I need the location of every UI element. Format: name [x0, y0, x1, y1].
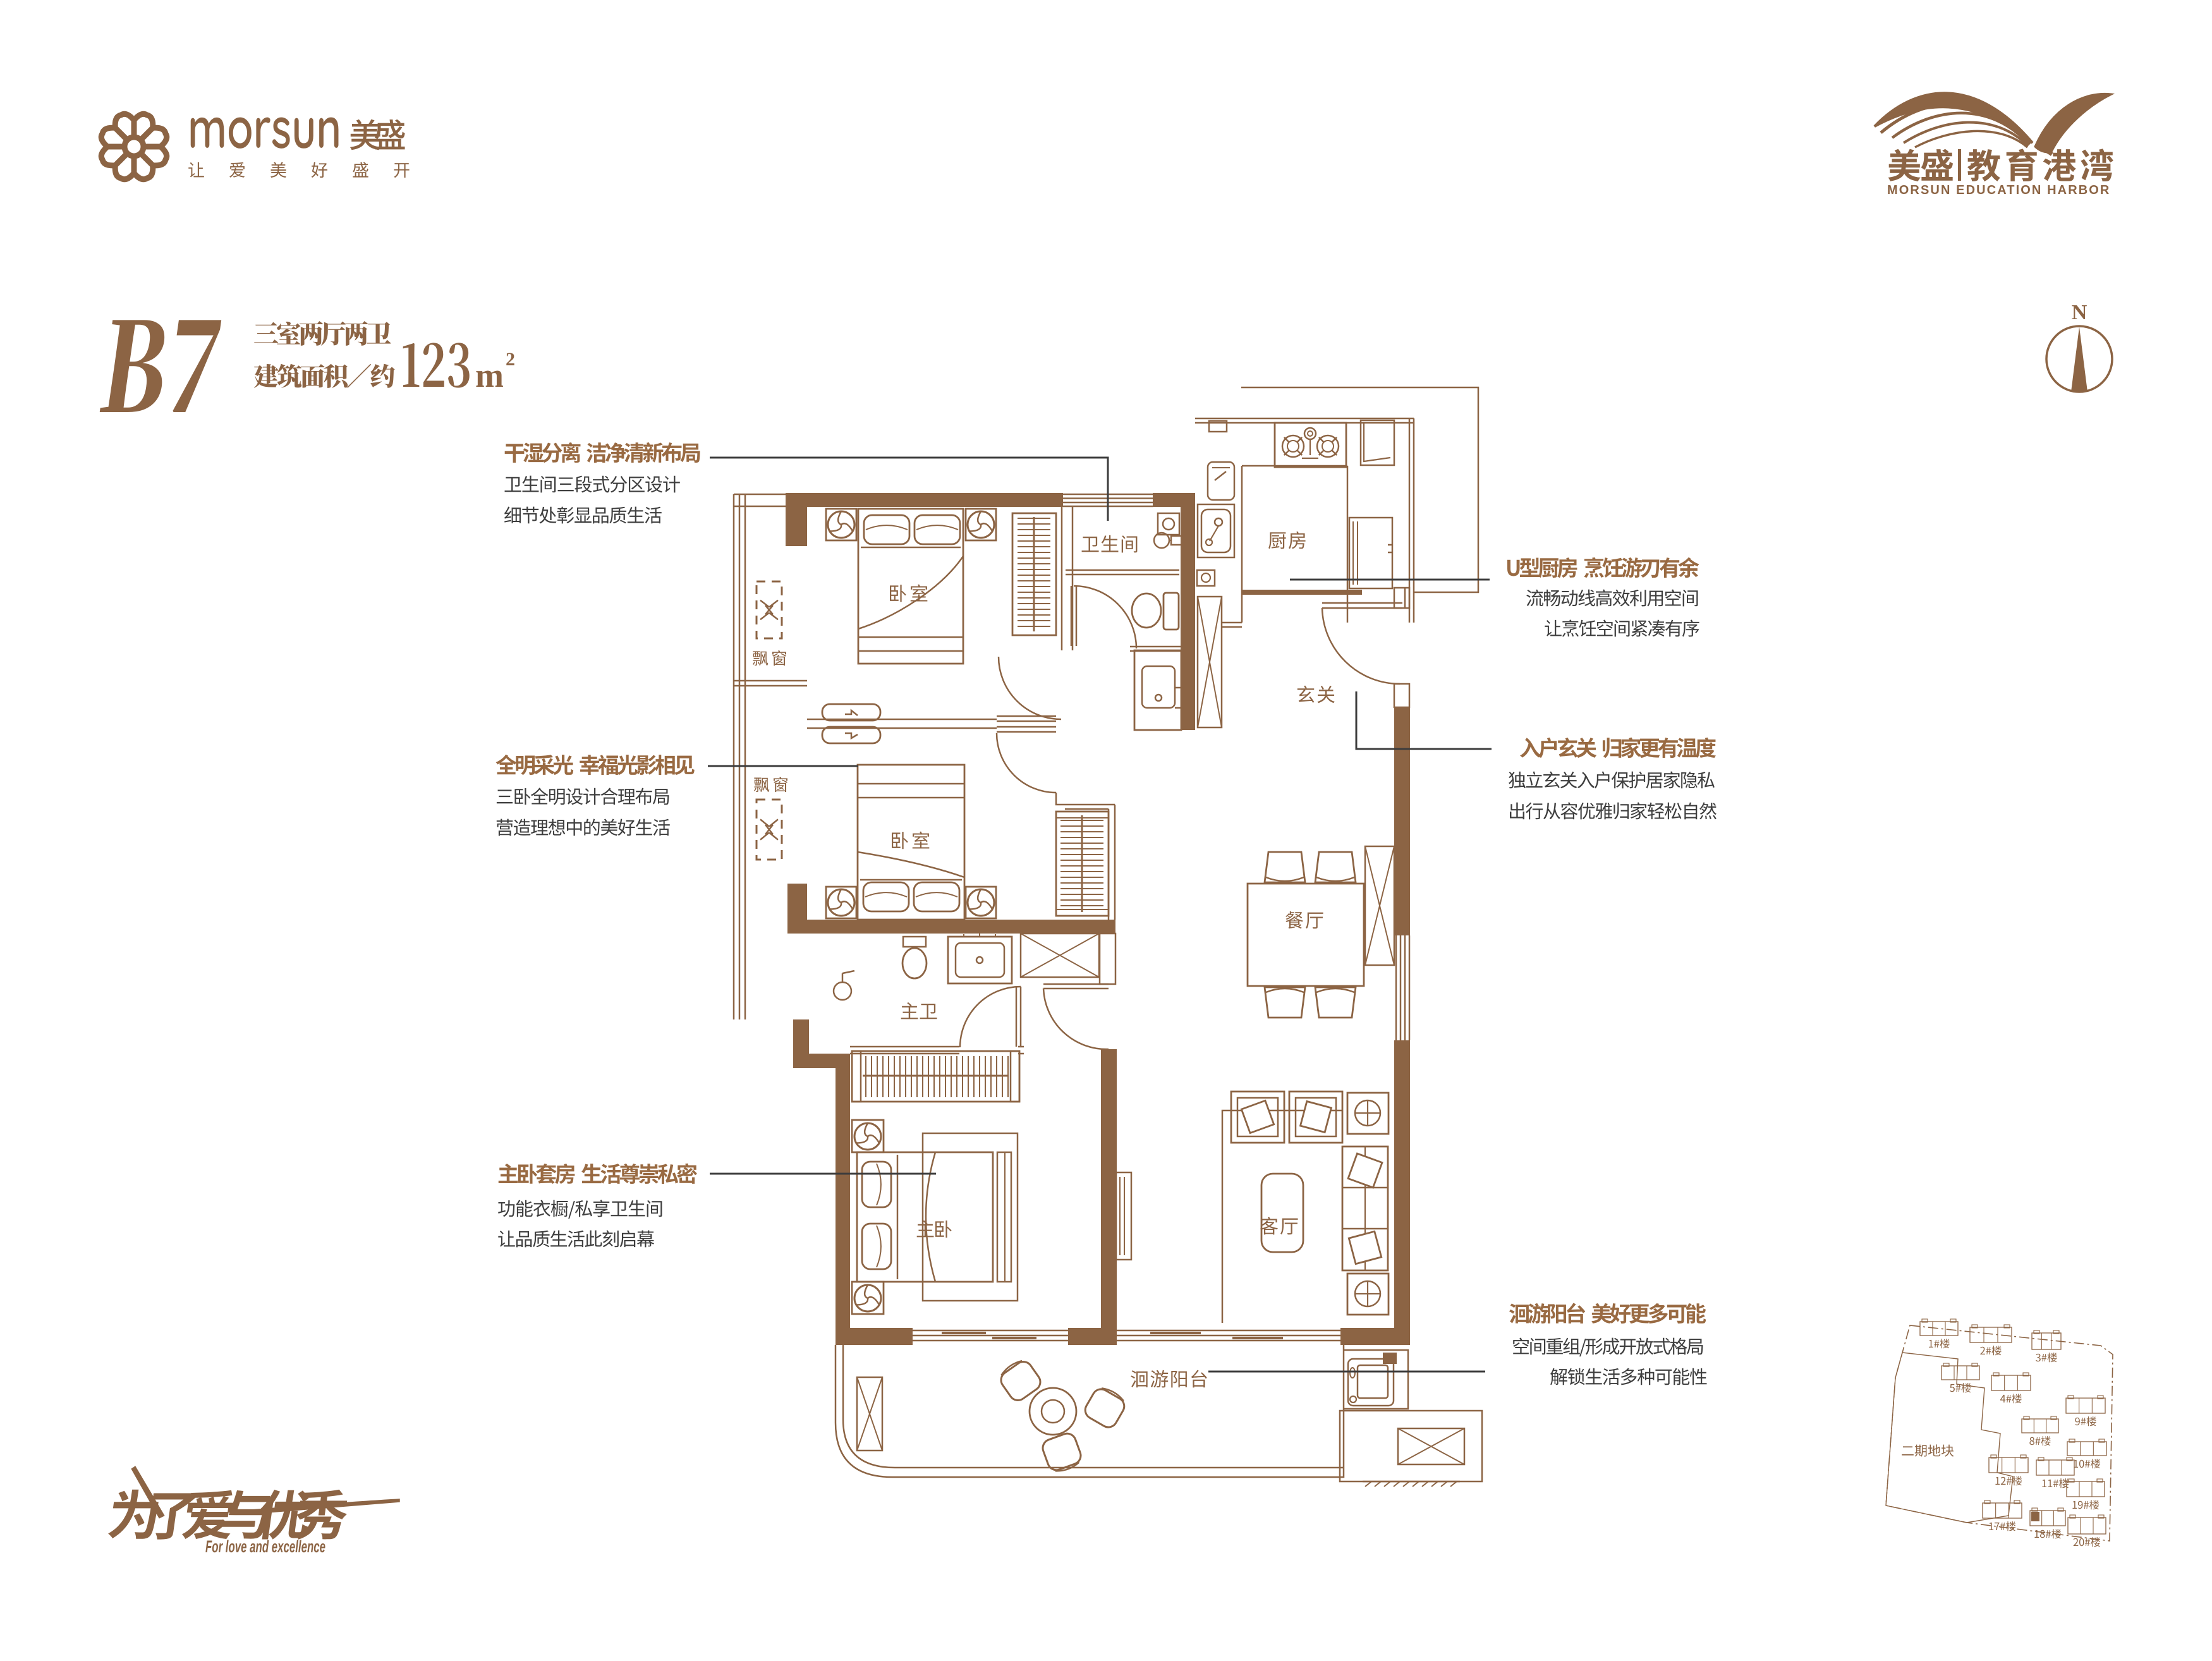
svg-text:MORSUN EDUCATION HARBOR: MORSUN EDUCATION HARBOR	[1887, 183, 2110, 197]
svg-text:2: 2	[506, 349, 515, 370]
svg-text:N: N	[2072, 301, 2087, 324]
svg-text:m: m	[475, 356, 504, 394]
svg-text:For love and excellence: For love and excellence	[205, 1537, 325, 1556]
